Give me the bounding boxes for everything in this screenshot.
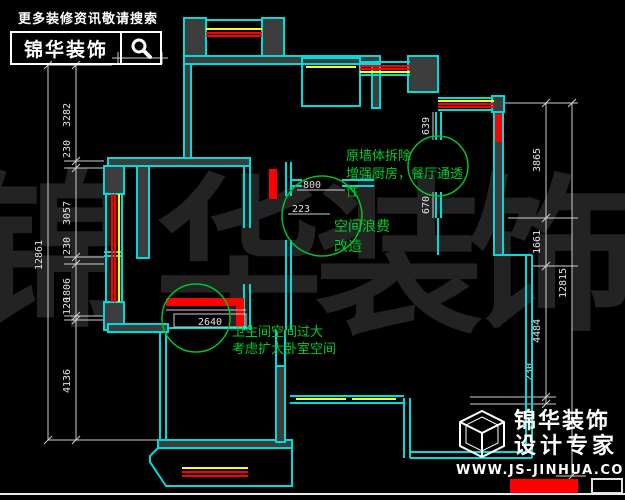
dim-left-seg: 230 <box>62 140 73 158</box>
cube-logo-icon <box>456 408 508 460</box>
dim-left-seg: 120 <box>62 297 73 315</box>
pillar <box>262 18 284 56</box>
dim-bath-width: 2640 <box>198 317 222 328</box>
note-wall-removal-line3: 性 <box>346 185 359 200</box>
search-button[interactable] <box>120 33 160 63</box>
company-logo: 锦华装饰 设计专家 WWW.JS-JINHUA.COM <box>456 408 622 478</box>
markup-circle-wall-removal <box>408 136 468 196</box>
dim-door-width: 800 <box>303 180 321 191</box>
markup-notes: 原墙体拆除 增强厨房，餐厅通透 性 空间浪费 改造 卫生间空间过大 考虑扩大卧室… <box>232 149 463 357</box>
dim-right-seg: 3865 <box>532 148 543 172</box>
dim-wall-lower: 670 <box>421 196 432 214</box>
logo-brand: 锦华装饰 <box>514 409 618 434</box>
floorplan-page: 锦 华 装 饰 12861 3282 230 3057 <box>0 0 625 500</box>
pillar <box>184 18 206 56</box>
white-outline-bar <box>592 479 622 493</box>
banner-tagline: 更多装修资讯敬请搜索 <box>10 8 162 27</box>
banner-brand-label: 锦华装饰 <box>12 33 120 63</box>
dim-right-seg: 1661 <box>532 230 543 254</box>
dim-left-seg: 3282 <box>62 103 73 127</box>
dim-right-total: 12815 <box>558 268 569 298</box>
note-bathroom-line1: 卫生间空间过大 <box>232 325 323 340</box>
dim-wall-upper: 639 <box>421 117 432 135</box>
red-bar <box>510 479 578 493</box>
logo-subtitle: 设计专家 <box>514 434 618 459</box>
red-wall-segment <box>166 298 242 306</box>
red-wall-segment <box>269 169 277 199</box>
dim-door-offset: 223 <box>292 204 310 215</box>
magnifier-icon <box>129 36 153 60</box>
dim-left-total: 12861 <box>34 240 45 270</box>
pillar <box>408 56 438 92</box>
red-wall-segment <box>495 114 502 142</box>
note-space-waste-line2: 改造 <box>334 239 362 255</box>
red-wall-segment <box>236 298 244 326</box>
note-bathroom-line2: 考虑扩大卧室空间 <box>232 341 336 357</box>
search-box[interactable]: 锦华装饰 <box>10 31 162 65</box>
logo-url[interactable]: WWW.JS-JINHUA.COM <box>456 463 622 478</box>
dim-left-seg: 4136 <box>62 369 73 393</box>
note-wall-removal-line2: 增强厨房，餐厅通透 <box>346 166 463 182</box>
note-space-waste-line1: 空间浪费 <box>334 219 390 235</box>
dimension-labels-left: 12861 3282 230 3057 230 1806 120 4136 <box>34 103 73 393</box>
dim-left-seg: 230 <box>62 237 73 255</box>
note-wall-removal-line1: 原墙体拆除 <box>346 149 411 164</box>
dim-left-seg: 3057 <box>62 201 73 225</box>
interior-dimensions: 800 223 2640 639 670 <box>166 112 433 328</box>
dim-right-seg: 4484 <box>532 319 543 343</box>
search-banner: 更多装修资讯敬请搜索 锦华装饰 <box>10 8 162 65</box>
